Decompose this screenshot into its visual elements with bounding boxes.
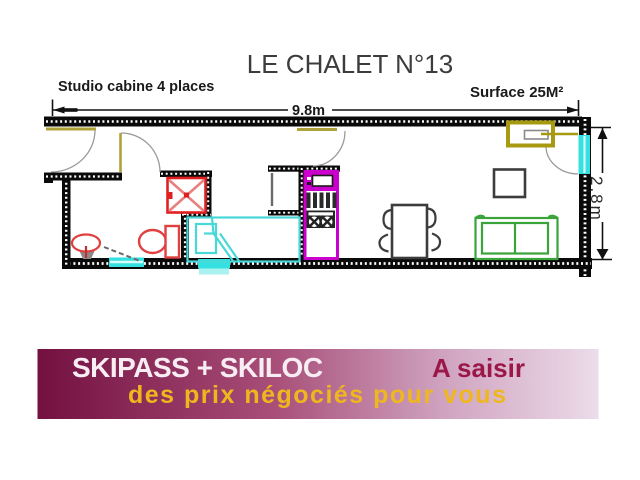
svg-text:des prix négociés pour vous: des prix négociés pour vous xyxy=(128,381,507,409)
svg-text:A saisir: A saisir xyxy=(432,353,525,383)
svg-text:Studio cabine 4 places: Studio cabine 4 places xyxy=(58,79,214,95)
svg-text:SKIPASS + SKILOC: SKIPASS + SKILOC xyxy=(72,352,323,383)
svg-text:Surface 25M²: Surface 25M² xyxy=(470,84,563,101)
svg-text:LE CHALET N°13: LE CHALET N°13 xyxy=(247,49,453,79)
